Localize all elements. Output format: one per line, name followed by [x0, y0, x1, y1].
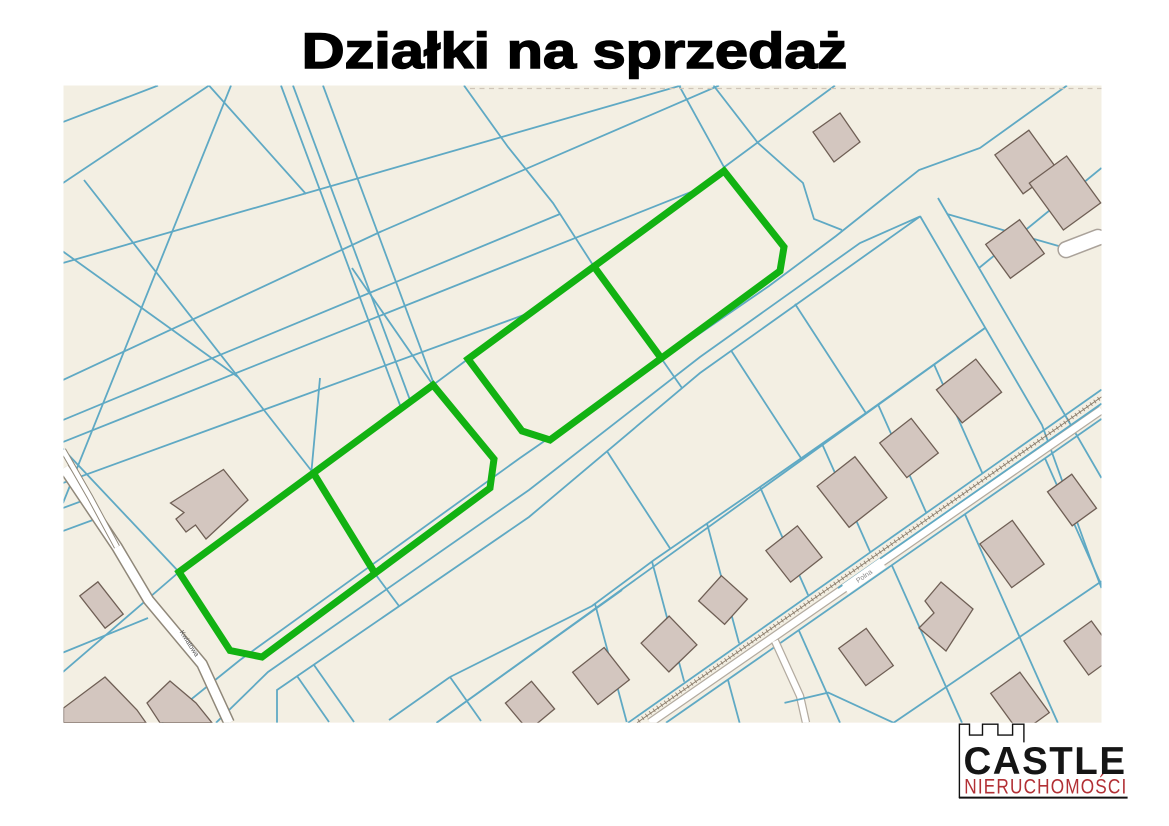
svg-text:Działki na sprzedaż: Działki na sprzedaż [302, 22, 848, 79]
svg-text:NIERUCHOMOŚCI: NIERUCHOMOŚCI [964, 775, 1127, 799]
